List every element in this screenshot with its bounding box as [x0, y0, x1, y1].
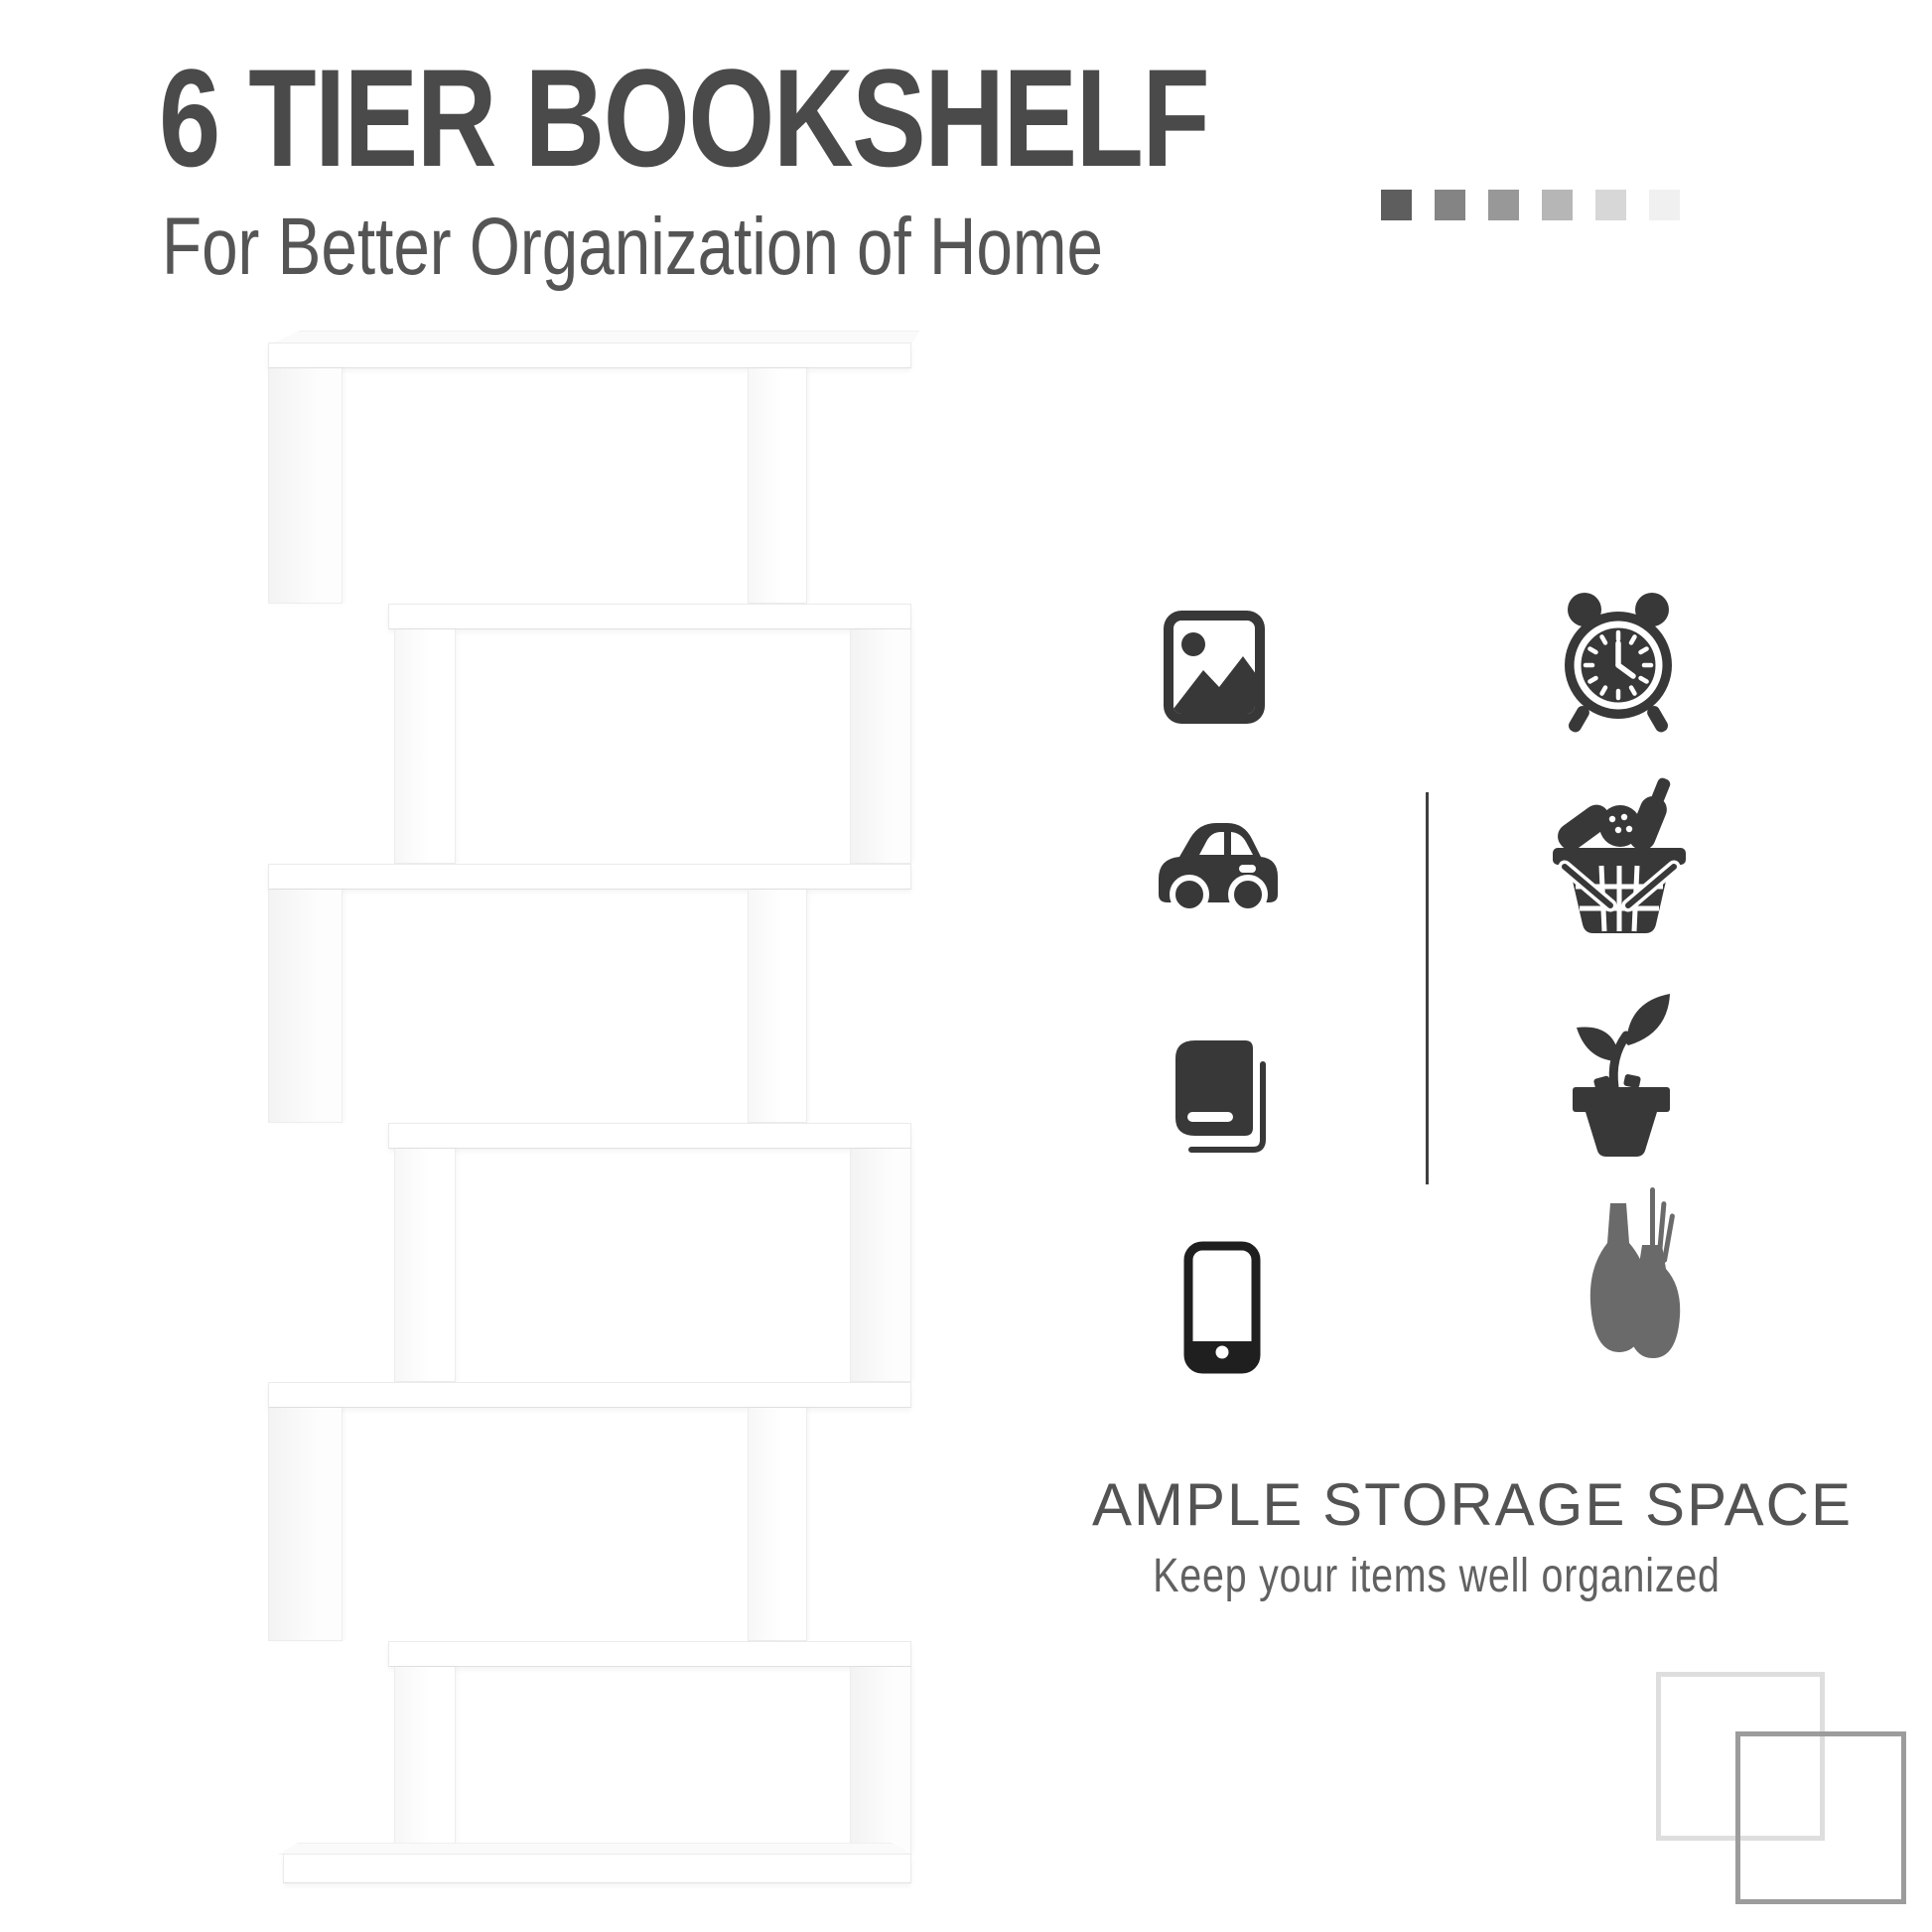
page-subtitle: For Better Organization of Home: [162, 207, 1103, 288]
shopping-basket-icon: [1549, 774, 1690, 935]
shelf-board: [268, 864, 911, 890]
gradient-square: [1542, 190, 1573, 220]
alarm-clock-icon: [1559, 586, 1678, 737]
shelf-panel: [850, 1667, 911, 1854]
bookshelf-image: [268, 343, 911, 1931]
book-icon: [1172, 1038, 1267, 1158]
storage-subheading: Keep your items well organized: [1153, 1553, 1707, 1600]
vases-icon: [1575, 1185, 1684, 1372]
shelf-board: [388, 604, 911, 629]
shelf-panel: [748, 368, 807, 604]
shelf-panel: [268, 1408, 343, 1641]
shelf-panel: [394, 629, 456, 864]
decor-outline-square-dark: [1735, 1731, 1906, 1904]
shelf-board: [388, 1123, 911, 1149]
gradient-square: [1595, 190, 1626, 220]
gradient-square: [1381, 190, 1412, 220]
shelf-panel: [850, 1149, 911, 1382]
shelf-panel: [394, 1667, 456, 1854]
page-title: 6 TIER BOOKSHELF: [159, 49, 1208, 188]
shelf-panel: [394, 1149, 456, 1382]
icon-column-divider: [1426, 792, 1429, 1184]
shelf-base-board: [283, 1854, 911, 1883]
shelf-panel: [268, 368, 343, 604]
gradient-square: [1435, 190, 1465, 220]
gradient-square: [1649, 190, 1680, 220]
car-icon: [1152, 809, 1285, 920]
shelf-panel: [748, 1408, 807, 1641]
shelf-top-face: [274, 331, 919, 343]
shelf-panel: [268, 890, 343, 1123]
gradient-square: [1488, 190, 1519, 220]
smartphone-icon: [1183, 1241, 1261, 1374]
gradient-squares: [1381, 190, 1680, 220]
shelf-board: [268, 343, 911, 368]
storage-heading: AMPLE STORAGE SPACE: [1092, 1475, 1767, 1535]
shelf-panel: [748, 890, 807, 1123]
product-infographic: 6 TIER BOOKSHELF For Better Organization…: [0, 0, 1932, 1932]
shelf-panel: [850, 629, 911, 864]
shelf-board: [268, 1382, 911, 1408]
shelf-board: [388, 1641, 911, 1667]
potted-plant-icon: [1565, 986, 1678, 1159]
picture-icon: [1164, 611, 1265, 724]
